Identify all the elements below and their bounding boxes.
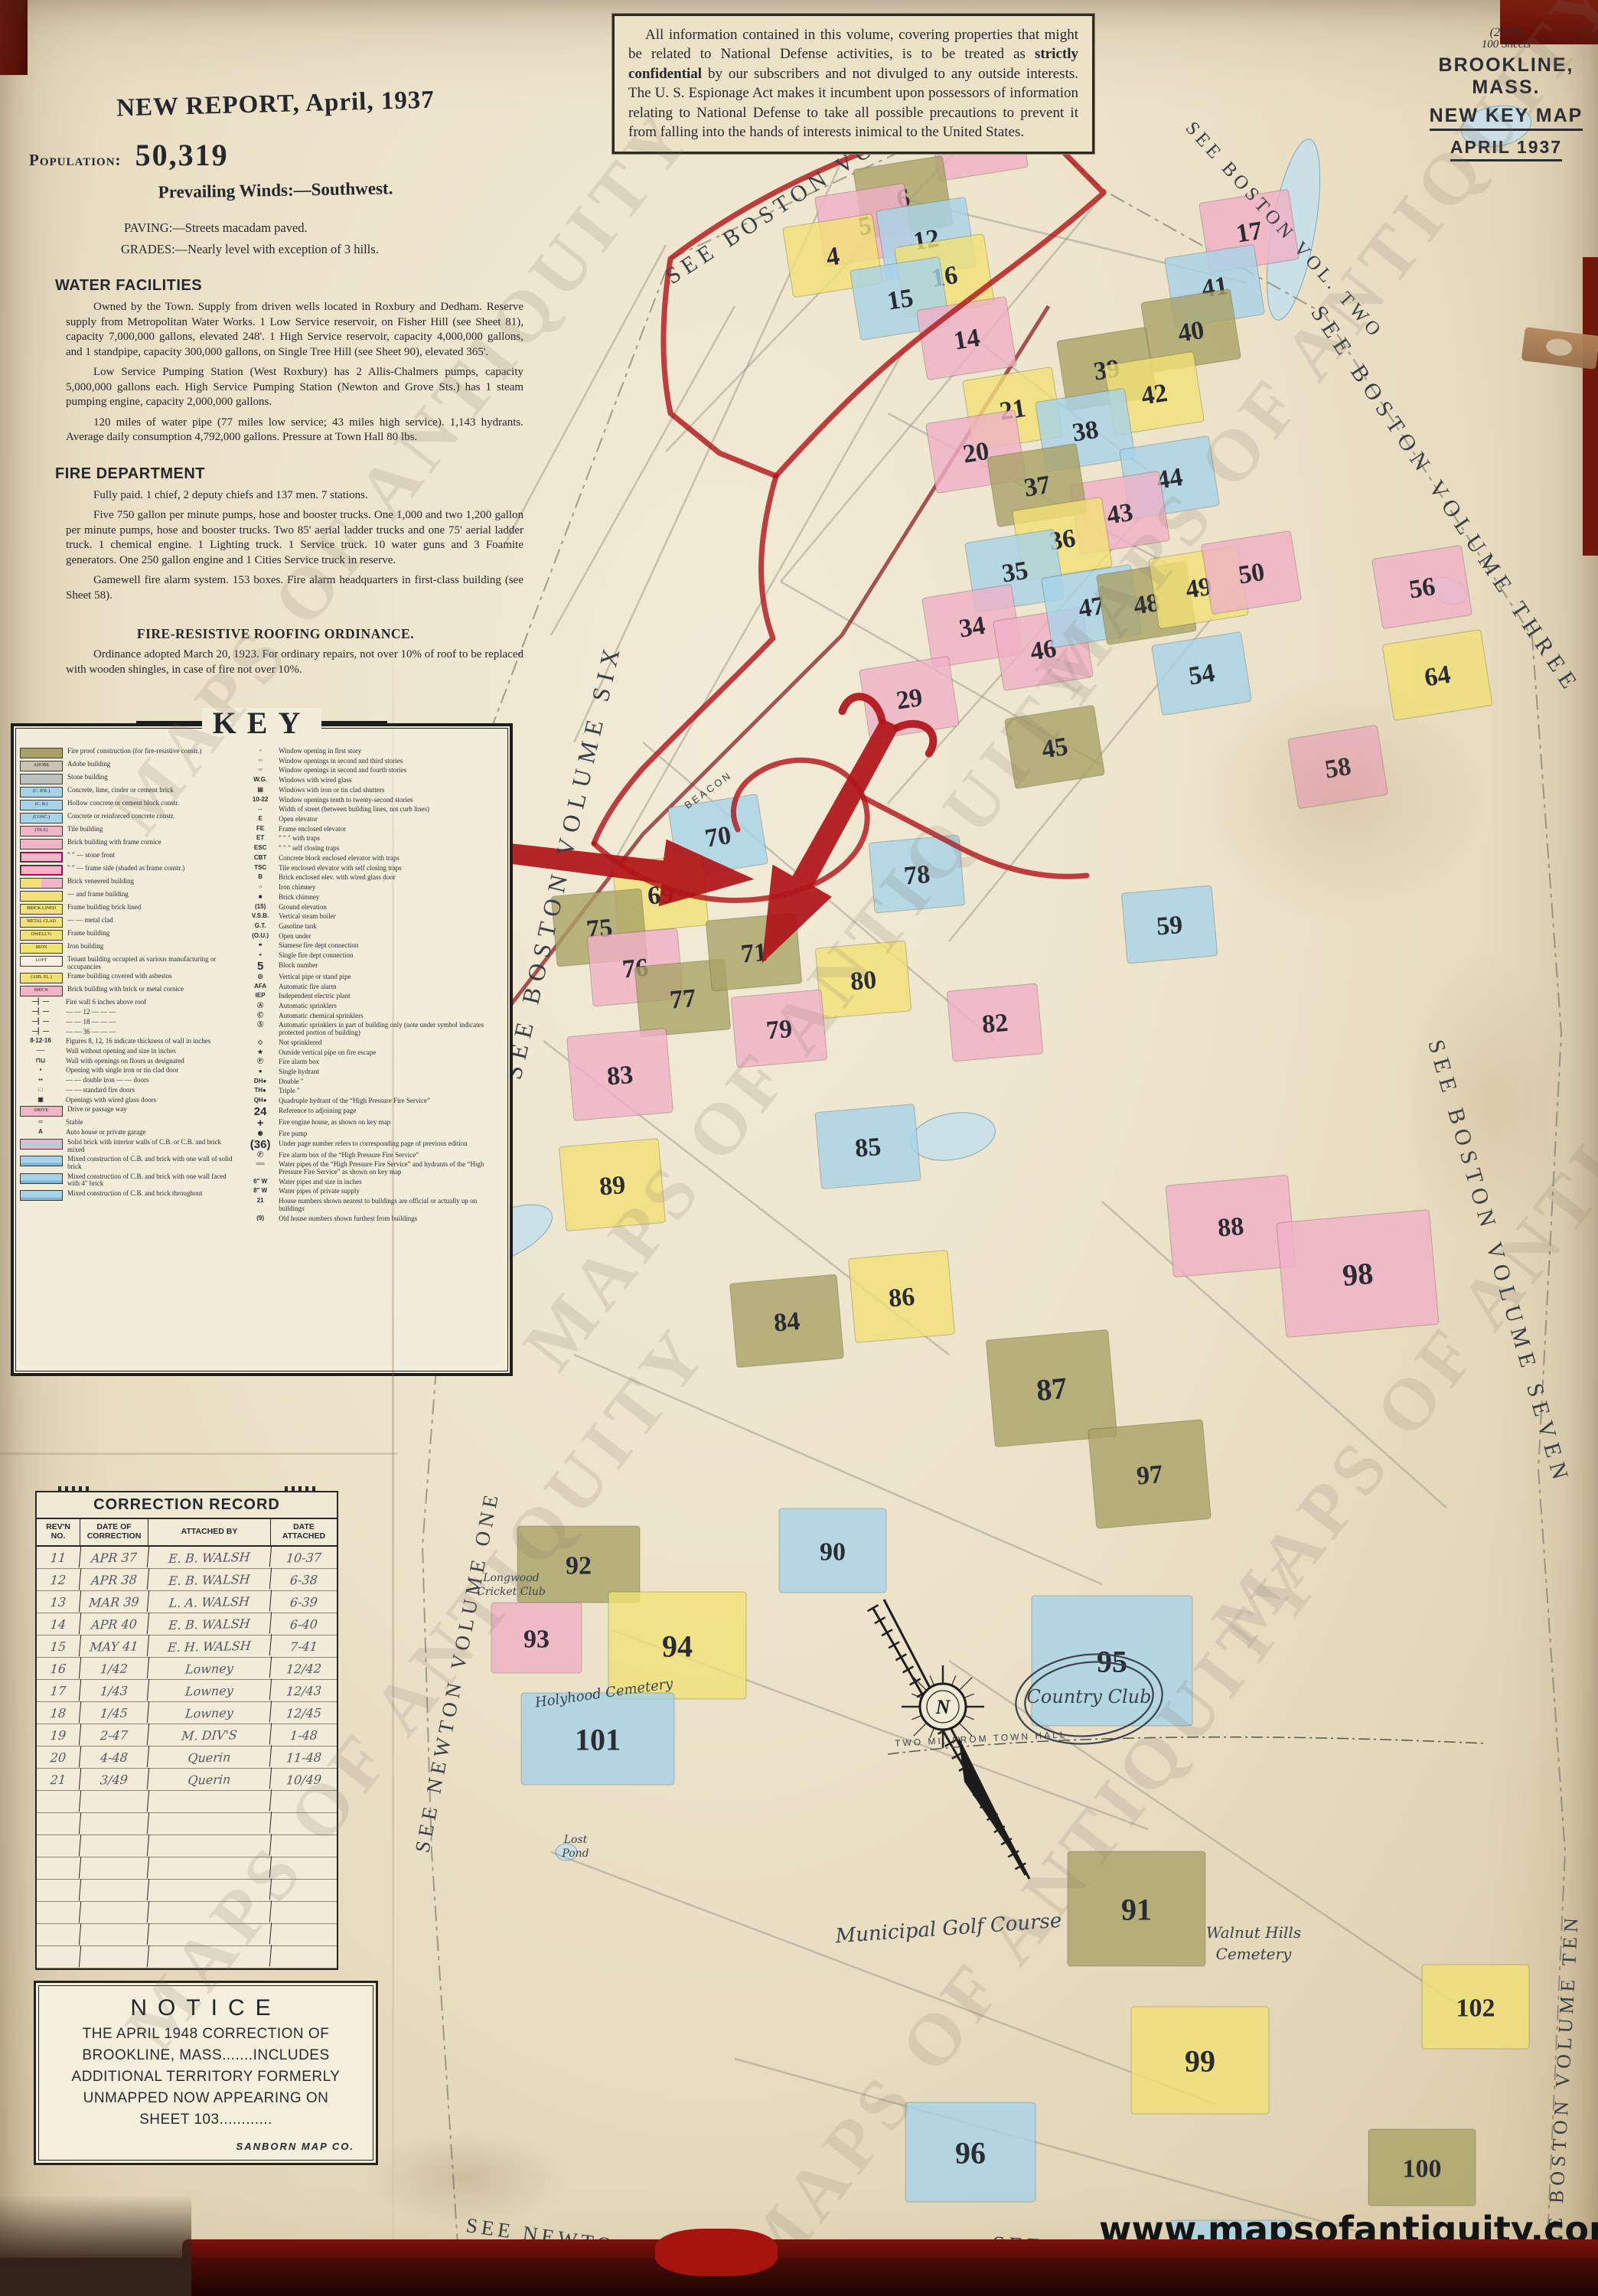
key-symbol: ↔: [246, 806, 274, 813]
key-symbol: 8″ W: [246, 1188, 274, 1195]
correction-cell: 7-41: [270, 1635, 338, 1658]
key-symbol: ◇: [246, 1039, 274, 1046]
correction-row: [37, 1835, 337, 1857]
correction-cell: [270, 1901, 338, 1924]
map-sheet: 14: [917, 296, 1017, 380]
roofing-ordinance-heading: FIRE-RESISTIVE ROOFING ORDINANCE.: [23, 626, 528, 642]
key-entry-label: Stone building: [67, 774, 239, 781]
key-entry: ⊓⊔Wall with openings on floors as design…: [20, 1058, 239, 1065]
correction-cell: [270, 1835, 338, 1857]
sanborn-signature: SANBORN MAP CO.: [44, 2141, 354, 2152]
key-symbol: Ⓒ: [246, 1013, 274, 1019]
key-entry: ″ ″ — frame side (shaded as frame constr…: [20, 865, 239, 876]
correction-cell: [36, 1835, 81, 1857]
correction-cell: [80, 1835, 149, 1857]
key-symbol: ▣: [20, 1097, 61, 1104]
key-entry-label: Wall with openings on floors as designat…: [66, 1058, 239, 1065]
key-entry-label: — — standard fire doors: [66, 1087, 239, 1094]
key-entry: ▤Windows with iron or tin clad shutters: [246, 787, 504, 794]
correction-cell: [36, 1923, 81, 1945]
key-symbol: ▫▫: [246, 767, 274, 774]
key-color-swatch: BRICK LINED: [20, 904, 63, 915]
key-symbol: ══: [246, 1161, 274, 1168]
fire-paragraph-3: Gamewell fire alarm system. 153 boxes. F…: [66, 573, 523, 603]
sheet-number: 64: [1423, 660, 1453, 693]
correction-row: 14APR 40E. B. WALSH6-40: [37, 1613, 337, 1636]
notice-box: NOTICE THE APRIL 1948 CORRECTION OF BROO…: [34, 1981, 378, 2165]
paving-note: PAVING:—Streets macadam paved.: [124, 220, 528, 236]
key-entry-label: Concrete or reinforced concrete constr.: [67, 813, 239, 820]
map-sheet: 59: [1121, 885, 1218, 964]
photo-backing-top-left: [0, 0, 28, 75]
correction-row: 13MAR 39L. A. WALSH6-39: [37, 1591, 337, 1613]
key-entry: 10-22Window openings tenth to twenty-sec…: [246, 797, 504, 804]
svg-text:N: N: [935, 1696, 951, 1718]
key-entry: ▣Openings with wired glass doors: [20, 1097, 239, 1104]
key-title-banner: KEY: [14, 708, 510, 739]
key-entry-label: Mixed construction of C.B. and brick thr…: [67, 1190, 239, 1198]
key-entry-label: Adobe building: [67, 761, 239, 768]
key-entry-label: Openings with wired glass doors: [66, 1097, 239, 1104]
correction-cell: [270, 1879, 338, 1902]
key-entry: QH●Quadruple hydrant of the “High Pressu…: [246, 1097, 504, 1105]
key-symbol: ◉: [246, 1130, 274, 1137]
key-color-swatch: [20, 852, 63, 863]
landmark-label: Longwood: [482, 1572, 540, 1584]
population-label: Population:: [29, 151, 122, 170]
map-sheet: 86: [848, 1251, 954, 1343]
key-color-swatch: [20, 774, 63, 784]
key-entry: ″ ″ — stone front: [20, 852, 239, 863]
correction-cell: DATE OF CORRECTION: [80, 1519, 148, 1545]
notice-line: THE APRIL 1948 CORRECTION OF: [44, 2026, 368, 2043]
key-entry: BBrick enclosed elev. with wired glass d…: [246, 874, 504, 882]
key-entry: BRICKBrick building with brick or metal …: [20, 986, 239, 996]
key-entry: (9)Old house numbers shown furthest from…: [246, 1215, 504, 1223]
key-entry: W.G.Windows with wired glass: [246, 777, 504, 784]
correction-cell: 1-48: [270, 1724, 338, 1746]
key-entry: (15)Ground elevation: [246, 904, 504, 912]
correction-cell: 1/43: [80, 1679, 149, 1702]
correction-cell: 6-40: [270, 1613, 338, 1636]
national-defense-notice: All information contained in this volume…: [612, 14, 1094, 154]
key-color-swatch: (TILE): [20, 826, 63, 837]
correction-row: 11APR 37E. B. WALSH10-37: [37, 1547, 337, 1569]
key-symbol: TSC: [246, 865, 274, 872]
correction-cell: [148, 1878, 272, 1902]
correction-cell: 17: [36, 1679, 81, 1701]
correction-cell: L. A. WALSH: [148, 1590, 272, 1613]
key-entry-label: — — metal clad: [67, 917, 239, 925]
key-symbol: ═: [20, 1119, 61, 1126]
key-entry: ⒻFire alarm box: [246, 1058, 504, 1066]
key-entry-label: Fire proof construction (for fire-resist…: [67, 748, 239, 755]
key-rule-right: [321, 721, 387, 726]
map-title: NEW KEY MAP: [1430, 105, 1583, 131]
key-entry: ↔Width of street (between building lines…: [246, 806, 504, 814]
key-entry: ○Iron chimney: [246, 884, 504, 892]
map-sheet: 88: [1166, 1175, 1296, 1277]
key-entry-label: Brick veneered building: [67, 878, 239, 885]
key-entry-label: Brick building with brick or metal corni…: [67, 986, 239, 993]
sheet-number: 42: [1140, 379, 1169, 411]
key-symbol: ESC: [246, 845, 274, 852]
population-value: 50,319: [135, 137, 229, 173]
correction-cell: 20: [36, 1746, 81, 1768]
grades-note: GRADES:—Nearly level with exception of 3…: [121, 242, 528, 257]
correction-cell: [270, 1812, 338, 1835]
correction-row: [37, 1791, 337, 1813]
water-paragraph-2: Low Service Pumping Station (West Roxbur…: [66, 365, 523, 410]
key-entry: IRONIron building: [20, 943, 239, 954]
correction-cell: Querin: [148, 1745, 272, 1769]
correction-cell: [80, 1812, 149, 1835]
key-entry: ⒶAutomatic sprinklers: [246, 1003, 504, 1010]
key-symbol: ■: [246, 894, 274, 901]
sheet-number: 80: [850, 966, 878, 996]
sanborn-key-map-photo: NEW REPORT, April, 1937 Population: 50,3…: [0, 0, 1598, 2296]
key-symbol: ▫▫: [246, 758, 274, 765]
correction-cell: [270, 1857, 338, 1880]
correction-cell: 10-37: [270, 1546, 338, 1569]
correction-cell: E. B. WALSH: [148, 1612, 272, 1636]
correction-row: 171/43Lowney12/43: [37, 1680, 337, 1702]
correction-row: 204-48Querin11-48: [37, 1746, 337, 1769]
key-entry: ADOBEAdobe building: [20, 761, 239, 771]
key-color-swatch: [20, 891, 63, 902]
key-entry: BRICK LINEDFrame building brick lined: [20, 904, 239, 915]
notice-line: BROOKLINE, MASS.......INCLUDES: [44, 2047, 368, 2064]
notice-line: ADDITIONAL TERRITORY FORMERLY: [44, 2069, 368, 2086]
key-entry-label: Opening with single iron or tin clad doo…: [66, 1067, 239, 1075]
population-row: Population: 50,319: [29, 137, 528, 173]
map-date: APRIL 1937: [1450, 137, 1562, 161]
key-entry: AAuto house or private garage: [20, 1129, 239, 1137]
defense-notice-text: All information contained in this volume…: [628, 25, 1078, 142]
correction-cell: 12: [36, 1568, 81, 1590]
key-color-swatch: (CONC.): [20, 813, 63, 823]
key-entry-label: Mixed construction of C.B. and brick wit…: [67, 1173, 239, 1188]
correction-cell: [36, 1790, 81, 1812]
key-entry: ══Water pipes of the “High Pressure Fire…: [246, 1161, 504, 1176]
sheet-number: 86: [888, 1283, 916, 1313]
key-entry-label: — — double iron — — doors: [66, 1077, 239, 1084]
sheet-number: 82: [981, 1009, 1009, 1039]
landmark-label: Country Club: [1027, 1686, 1152, 1707]
landmark-label: Walnut Hills: [1206, 1923, 1301, 1942]
key-rule-left: [136, 721, 202, 726]
paper-crease-horizontal: [0, 1453, 398, 1455]
key-symbol: A: [20, 1129, 61, 1136]
key-symbol: IEP: [246, 993, 274, 1000]
key-entry: ⚬Single fire dept connection: [246, 952, 504, 960]
key-entry-label: — — 36 — — —: [66, 1029, 239, 1036]
map-sheet: 84: [729, 1274, 843, 1368]
prevailing-winds: Prevailing Winds:—Southwest.: [23, 176, 528, 205]
water-paragraph-3: 120 miles of water pipe (77 miles low se…: [66, 416, 523, 445]
landmark-label: Lost: [563, 1834, 588, 1846]
map-sheet: 93: [491, 1603, 582, 1673]
correction-cell: [148, 1856, 272, 1880]
key-entry-label: Fire wall 6 inches above roof: [66, 999, 239, 1006]
key-entry-label: Hollow concrete or cement block constr.: [67, 800, 239, 807]
key-color-swatch: [20, 1173, 63, 1184]
correction-cell: APR 37: [80, 1546, 149, 1569]
key-symbol: 5: [246, 962, 274, 971]
correction-cell: E. B. WALSH: [148, 1545, 272, 1569]
sheet-number: 99: [1185, 2043, 1215, 2078]
key-entry: Stone building: [20, 774, 239, 784]
key-color-swatch: METAL CLAD: [20, 917, 63, 928]
key-symbol: Ⓐ: [246, 1003, 274, 1009]
key-symbol: 8·12·16: [20, 1038, 61, 1045]
correction-cell: [36, 1945, 81, 1968]
key-color-swatch: ADOBE: [20, 761, 63, 771]
map-key-legend: KEY Fire proof construction (for fire-re…: [11, 723, 513, 1376]
key-entry: Mixed construction of C.B. and brick wit…: [20, 1173, 239, 1188]
correction-row: 161/42Lowney12/42: [37, 1658, 337, 1680]
edge-label: SEE BOSTON VOLUME SEVEN: [1423, 1037, 1574, 1488]
key-entry: —▏—— — 36 — — —: [20, 1029, 239, 1036]
correction-cell: [148, 1900, 272, 1924]
water-paragraph-1: Owned by the Town. Supply from driven we…: [66, 300, 523, 360]
key-symbol: 6″ W: [246, 1179, 274, 1186]
sheet-number: 98: [1341, 1256, 1375, 1293]
fire-paragraph-1: Fully paid. 1 chief, 2 deputy chiefs and…: [66, 488, 523, 504]
key-symbol: G.T.: [246, 923, 274, 930]
key-color-swatch: [20, 878, 63, 889]
key-entry-label: Frame building brick lined: [67, 904, 239, 912]
key-entry: (36)Under page number refers to correspo…: [246, 1140, 504, 1150]
map-sheet: 100: [1368, 2129, 1476, 2206]
key-entry-label: Drive or passage way: [67, 1106, 239, 1114]
key-entry: ⚭Siamese fire dept connection: [246, 942, 504, 950]
water-facilities-heading: WATER FACILITIES: [55, 277, 528, 295]
key-entry: Mixed construction of C.B. and brick wit…: [20, 1156, 239, 1170]
key-entry-label: Wall without opening and size in inches: [66, 1048, 239, 1055]
map-sheet: 54: [1152, 631, 1252, 715]
correction-cell: Lowney: [148, 1678, 272, 1702]
key-entry: EOpen elevator: [246, 816, 504, 823]
sheet-number: 93: [523, 1625, 550, 1653]
key-entry: (O.U.)Open under: [246, 933, 504, 941]
map-sheet: 80: [815, 941, 912, 1019]
key-entry: ET″ ″ ″ with traps: [246, 835, 504, 843]
key-entry: ■Brick chimney: [246, 894, 504, 902]
sheet-number: 101: [575, 1722, 621, 1756]
key-entry: IEPIndependent electric plant: [246, 993, 504, 1000]
correction-cell: [80, 1901, 149, 1924]
key-entry-label: Figures 8, 12, 16 indicate thickness of …: [66, 1038, 239, 1045]
roofing-ordinance-paragraph: Ordinance adopted March 20, 1923. For or…: [66, 647, 523, 677]
key-symbol: V.S.B.: [246, 913, 274, 920]
report-title: NEW REPORT, April, 1937: [38, 84, 514, 125]
correction-row: 213/49Querin10/49: [37, 1769, 337, 1791]
correction-cell: 19: [36, 1724, 81, 1746]
city-name: BROOKLINE, MASS.: [1413, 54, 1598, 99]
key-entry: ★Outside vertical pipe on fire escape: [246, 1049, 504, 1057]
correction-record-table: REV'N NO.DATE OF CORRECTIONATTACHED BYDA…: [35, 1519, 338, 1970]
correction-cell: 18: [36, 1701, 81, 1724]
correction-cell: 4-48: [80, 1746, 149, 1769]
key-entry: AFAAutomatic fire alarm: [246, 983, 504, 991]
correction-cell: [80, 1879, 149, 1902]
key-symbol: FE: [246, 826, 274, 833]
correction-cell: ATTACHED BY: [148, 1519, 271, 1545]
map-sheet: 90: [779, 1508, 886, 1593]
sheet-number: 29: [895, 683, 925, 716]
key-entry: ◎Vertical pipe or stand pipe: [246, 974, 504, 981]
map-sheet: 79: [731, 990, 827, 1068]
map-sheet: 99: [1131, 2007, 1269, 2114]
key-entry: ▫Window opening in first story: [246, 748, 504, 755]
sheet-number: 50: [1237, 558, 1267, 590]
key-entry-label: Solid brick with interior walls of C.B. …: [67, 1139, 239, 1153]
street-line: [551, 306, 735, 635]
sheet-number: 90: [820, 1538, 846, 1566]
key-symbol: —▏—: [20, 1029, 61, 1035]
correction-cell: [270, 1790, 338, 1813]
correction-cell: Querin: [148, 1767, 272, 1791]
key-color-swatch: [20, 748, 63, 758]
sheet-number: 38: [1071, 416, 1101, 448]
key-color-swatch: (C. B'K.): [20, 787, 63, 797]
correction-cell: REV'N NO.: [37, 1519, 80, 1545]
key-entry: DH●Double ″: [246, 1078, 504, 1086]
key-entry: □— — standard fire doors: [20, 1087, 239, 1094]
correction-cell: 6-39: [270, 1590, 338, 1613]
key-color-swatch: [20, 839, 63, 850]
key-entry: Solid brick with interior walls of C.B. …: [20, 1139, 239, 1153]
key-symbol: DH●: [246, 1078, 274, 1085]
key-entry: (TILE)Tile building: [20, 826, 239, 837]
correction-cell: [36, 1901, 81, 1923]
key-entry: ▪▪— — double iron — — doors: [20, 1077, 239, 1084]
key-symbol: ▪▪: [20, 1077, 61, 1084]
key-entry: ●Single hydrant: [246, 1068, 504, 1076]
correction-cell: [80, 1945, 149, 1968]
key-symbol: CBT: [246, 855, 274, 862]
sheet-number: 35: [1000, 556, 1030, 589]
key-symbol: ▪: [20, 1067, 61, 1074]
correction-cell: [148, 1834, 272, 1857]
key-symbol: ●: [246, 1068, 274, 1075]
correction-row: 181/45Lowney12/45: [37, 1702, 337, 1724]
photo-shadow-bottom-left: [0, 2195, 191, 2296]
correction-cell: E. H. WALSH: [148, 1634, 272, 1658]
key-symbol: +: [246, 1119, 274, 1128]
key-color-swatch: LOFT: [20, 956, 63, 967]
sheet-number: 43: [1105, 498, 1135, 530]
key-entry: ⒸAutomatic chemical sprinklers: [246, 1013, 504, 1020]
key-left-column: Fire proof construction (for fire-resist…: [20, 748, 239, 1225]
key-entry: (C. B.)Hollow concrete or cement block c…: [20, 800, 239, 810]
key-entry: —▏—— — 12 — — —: [20, 1009, 239, 1016]
correction-cell: [36, 1812, 81, 1835]
sheet-number: 96: [955, 2135, 986, 2170]
report-block: NEW REPORT, April, 1937 Population: 50,3…: [23, 90, 528, 677]
notice-line: UNMAPPED NOW APPEARING ON: [44, 2090, 368, 2107]
correction-cell: [148, 1789, 272, 1813]
key-color-swatch: (ASB. EL.): [20, 973, 63, 983]
sheet-number: 34: [957, 612, 987, 644]
correction-cell: 16: [36, 1657, 81, 1679]
key-color-swatch: [20, 865, 63, 876]
key-entry: ──Wall without opening and size in inche…: [20, 1048, 239, 1055]
sheet-number: 92: [566, 1551, 592, 1580]
key-color-swatch: [20, 1156, 63, 1166]
correction-cell: [148, 1923, 272, 1946]
sheet-number: 77: [669, 984, 697, 1015]
key-entry-label: Frame building covered with asbestos: [67, 973, 239, 980]
correction-cell: 10/49: [270, 1768, 338, 1791]
key-symbol: 10-22: [246, 797, 274, 804]
map-sheet: 56: [1372, 545, 1472, 628]
key-entry: FEFrame enclosed elevator: [246, 826, 504, 833]
key-entry-label: — — 12 — — —: [66, 1009, 239, 1016]
key-symbol: ▤: [246, 787, 274, 794]
map-sheet: 85: [815, 1104, 921, 1189]
key-symbol: TH●: [246, 1088, 274, 1094]
key-color-swatch: DWELL'G: [20, 930, 63, 941]
correction-cell: E. B. WALSH: [148, 1567, 272, 1591]
notice-title: NOTICE: [44, 1995, 368, 2021]
key-entry: ◉Fire pump: [246, 1130, 504, 1138]
correction-cell: [148, 1945, 272, 1968]
correction-cell: MAY 41: [80, 1635, 149, 1658]
sheet-number: 70: [703, 821, 733, 853]
sheet-number: 78: [903, 860, 931, 891]
key-symbol: ○: [246, 884, 274, 891]
sheet-number: 100: [1403, 2154, 1442, 2183]
key-symbol: (9): [246, 1215, 274, 1222]
key-entry: (CONC.)Concrete or reinforced concrete c…: [20, 813, 239, 823]
key-entry: ◇Not sprinklered: [246, 1039, 504, 1047]
key-entry: 5Block number: [246, 962, 504, 971]
key-symbol: (36): [246, 1140, 274, 1150]
correction-row: 12APR 38E. B. WALSH6-38: [37, 1569, 337, 1591]
sheet-number: 15: [885, 284, 915, 316]
fire-department-heading: FIRE DEPARTMENT: [55, 465, 528, 483]
correction-cell: MAR 39: [80, 1590, 149, 1613]
key-symbol: (15): [246, 904, 274, 911]
key-entry-label: Mixed construction of C.B. and brick wit…: [67, 1156, 239, 1170]
key-symbol: Ⓢ: [246, 1022, 274, 1029]
key-entry: (C. B'K.)Concrete, lime, cinder or cemen…: [20, 787, 239, 797]
key-symbol: ⚬: [246, 952, 274, 959]
key-symbol: 24: [246, 1107, 274, 1117]
key-entry-label: — — 18 — — —: [66, 1019, 239, 1026]
key-entry: TSCTile enclosed elevator with self clos…: [246, 865, 504, 872]
key-entry: —▏—— — 18 — — —: [20, 1019, 239, 1026]
correction-cell: 3/49: [80, 1768, 149, 1791]
key-symbol: E: [246, 816, 274, 823]
correction-cell: [270, 1945, 338, 1968]
map-sheet: 78: [869, 835, 965, 913]
key-entry: DWELL'GFrame building: [20, 930, 239, 941]
key-entry: METAL CLAD— — metal clad: [20, 917, 239, 928]
correction-cell: 12/43: [270, 1679, 338, 1702]
key-entry: Brick veneered building: [20, 878, 239, 889]
sheet-number: 88: [1217, 1212, 1245, 1243]
street-line: [505, 245, 666, 543]
key-entry-label: Tile building: [67, 826, 239, 833]
map-sheet: 98: [1277, 1210, 1439, 1338]
key-color-swatch: [20, 1190, 63, 1201]
map-sheet: 83: [566, 1029, 673, 1121]
key-entry: ESC″ ″ ″ self closing traps: [246, 845, 504, 853]
key-entry: 6″ WWater pipes and size in inches: [246, 1179, 504, 1186]
